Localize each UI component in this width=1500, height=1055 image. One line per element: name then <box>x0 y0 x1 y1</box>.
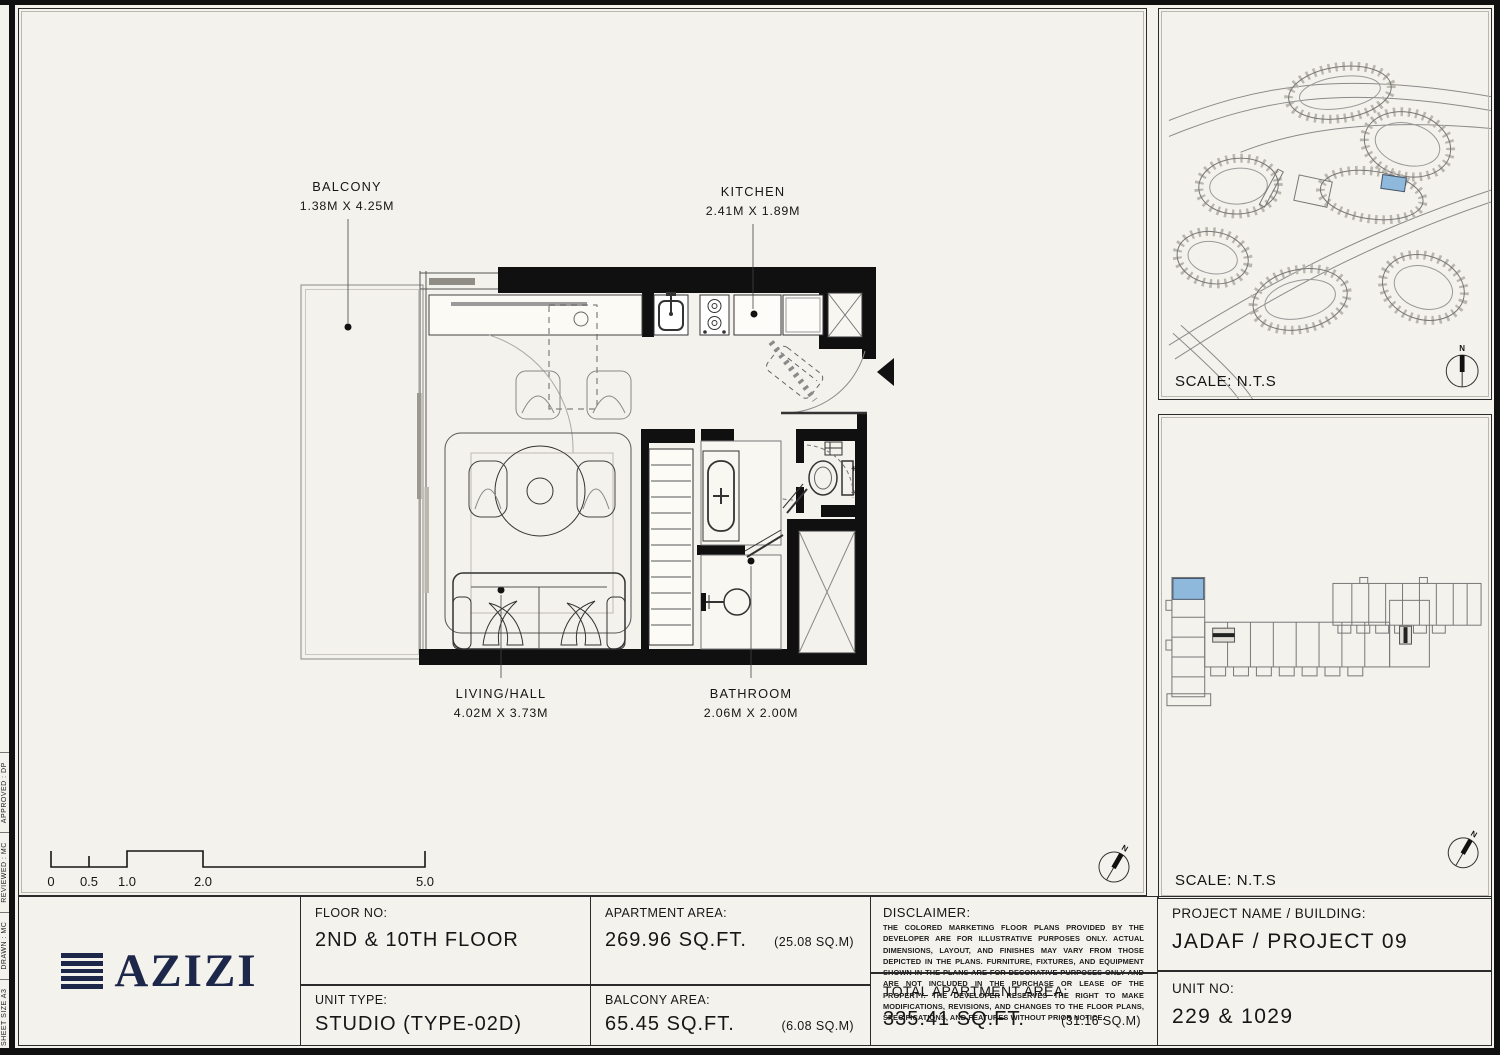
key-north-compass-icon: N <box>1443 823 1489 873</box>
unit-type-value: STUDIO (TYPE-02D) <box>301 1007 590 1036</box>
svg-text:0: 0 <box>47 874 54 889</box>
svg-text:4.02M X 3.73M: 4.02M X 3.73M <box>454 706 548 720</box>
azizi-logo-bars-icon <box>61 953 103 988</box>
svg-text:+: + <box>851 488 857 499</box>
margin-note-drawn: DRAWN : MC <box>0 912 9 979</box>
svg-text:LIVING/HALL: LIVING/HALL <box>456 686 547 701</box>
balcony-area-value: 65.45 SQ.FT. <box>605 1013 735 1036</box>
floor-plan-panel: + + BALCONY 1.38M X 4.25M KITCHEN 2.41M … <box>18 8 1147 896</box>
key-plan-drawing: N <box>1159 415 1491 898</box>
balcony-area-metric: (6.08 SQ.M) <box>782 1019 854 1033</box>
site-map-panel: N SCALE: N.T.S <box>1158 8 1492 400</box>
toilet-icon <box>809 461 837 495</box>
kitchen-cabinet-icon <box>783 295 823 335</box>
wardrobe <box>649 449 693 645</box>
svg-text:5.0: 5.0 <box>416 874 434 889</box>
svg-text:2.41M X 1.89M: 2.41M X 1.89M <box>706 204 800 218</box>
disclaimer-label: DISCLAIMER: <box>871 897 1157 920</box>
scale-bar: 0 0.5 1.0 2.0 5.0 <box>47 851 434 889</box>
room-label-balcony: BALCONY 1.38M X 4.25M <box>300 179 394 323</box>
kitchen-leader-dot <box>751 311 758 318</box>
sheet-margin-notes: SHEET SIZE A3 DRAWN : MC REVIEWED : MC A… <box>0 743 9 1055</box>
entry-arrow-icon <box>877 358 894 386</box>
svg-text:+: + <box>851 464 857 475</box>
margin-note-sheet-size: SHEET SIZE A3 <box>0 979 9 1055</box>
living-leader-dot <box>498 587 505 594</box>
balcony-area-label: BALCONY AREA: <box>591 986 870 1007</box>
svg-text:BALCONY: BALCONY <box>312 179 382 194</box>
svg-text:2.0: 2.0 <box>194 874 212 889</box>
wc-fixtures: + + <box>783 442 857 513</box>
floor-no-value: 2ND & 10TH FLOOR <box>301 920 590 952</box>
sheet-frame-left <box>9 0 15 1055</box>
svg-text:KITCHEN: KITCHEN <box>721 184 786 199</box>
balcony-leader-dot <box>345 324 352 331</box>
dashed-appliance <box>764 344 825 401</box>
sheet-frame-bottom <box>0 1048 1500 1055</box>
balcony-outline <box>301 285 423 659</box>
project-name-value: JADAF / PROJECT 09 <box>1158 921 1491 954</box>
svg-text:0.5: 0.5 <box>80 874 98 889</box>
site-map-scale-label: SCALE: N.T.S <box>1175 373 1276 390</box>
floor-no-cell: FLOOR NO: 2ND & 10TH FLOOR <box>300 896 591 985</box>
project-name-cell: PROJECT NAME / BUILDING: JADAF / PROJECT… <box>1157 896 1492 971</box>
svg-text:2.06M X 2.00M: 2.06M X 2.00M <box>704 706 798 720</box>
total-area-value: 335.41 SQ.FT. <box>883 1008 1025 1031</box>
north-compass-icon: N <box>1094 837 1140 888</box>
margin-note-reviewed: REVIEWED : MC <box>0 832 9 912</box>
stove-icon <box>700 295 729 335</box>
total-area-metric: (31.16 SQ.M) <box>1061 1014 1141 1028</box>
elevator-shaft <box>787 519 867 665</box>
unit-no-value: 229 & 1029 <box>1158 996 1491 1029</box>
key-plan-panel: N SCALE: N.T.S <box>1158 414 1492 899</box>
margin-note-approved: APPROVED : DP <box>0 752 9 832</box>
apartment-area-metric: (25.08 SQ.M) <box>774 935 854 949</box>
svg-text:N: N <box>1120 843 1130 854</box>
key-plan-scale-label: SCALE: N.T.S <box>1175 872 1276 889</box>
highlighted-building <box>1381 175 1407 192</box>
site-map-drawing: N <box>1159 9 1491 399</box>
apartment-area-cell: APARTMENT AREA: 269.96 SQ.FT. (25.08 SQ.… <box>590 896 871 985</box>
svg-text:1.0: 1.0 <box>118 874 136 889</box>
azizi-logo-text: AZIZI <box>114 948 257 995</box>
site-north-compass-icon: N <box>1446 344 1478 387</box>
kitchen-sink-icon <box>654 292 688 335</box>
unit-no-label: UNIT NO: <box>1158 972 1491 996</box>
balcony-area-cell: BALCONY AREA: 65.45 SQ.FT. (6.08 SQ.M) <box>590 985 871 1046</box>
sofa <box>453 573 625 649</box>
unit-no-cell: UNIT NO: 229 & 1029 <box>1157 971 1492 1046</box>
sheet-frame-top <box>0 0 1500 5</box>
floor-plan-drawing: + + BALCONY 1.38M X 4.25M KITCHEN 2.41M … <box>19 9 1148 895</box>
disclaimer-cell: DISCLAIMER: THE COLORED MARKETING FLOOR … <box>870 896 1158 973</box>
bathroom-leader-dot <box>748 558 755 565</box>
floor-plan-sheet: SHEET SIZE A3 DRAWN : MC REVIEWED : MC A… <box>0 0 1500 1055</box>
service-shaft <box>828 293 862 337</box>
svg-text:BATHROOM: BATHROOM <box>710 686 793 701</box>
azizi-logo: AZIZI <box>61 948 257 995</box>
highlighted-unit <box>1173 578 1204 599</box>
svg-text:N: N <box>1469 829 1479 840</box>
total-area-cell: TOTAL APARTMENT AREA: 335.41 SQ.FT. (31.… <box>870 973 1158 1046</box>
project-name-label: PROJECT NAME / BUILDING: <box>1158 897 1491 921</box>
apartment-area-value: 269.96 SQ.FT. <box>605 929 747 952</box>
apartment-area-label: APARTMENT AREA: <box>591 897 870 920</box>
unit-type-label: UNIT TYPE: <box>301 986 590 1007</box>
bathroom-fixtures <box>701 441 783 649</box>
living-furniture <box>445 433 631 633</box>
svg-text:1.38M X 4.25M: 1.38M X 4.25M <box>300 199 394 213</box>
site-roads <box>1169 83 1491 398</box>
total-area-label: TOTAL APARTMENT AREA: <box>871 974 1157 999</box>
svg-text:N: N <box>1459 344 1465 353</box>
logo-cell: AZIZI <box>18 896 301 1046</box>
kitchen-fixtures <box>429 292 825 401</box>
building-footprint <box>1166 577 1481 705</box>
sheet-frame-right <box>1494 0 1500 1055</box>
floor-no-label: FLOOR NO: <box>301 897 590 920</box>
fridge-icon <box>734 295 781 335</box>
unit-type-cell: UNIT TYPE: STUDIO (TYPE-02D) <box>300 985 591 1046</box>
